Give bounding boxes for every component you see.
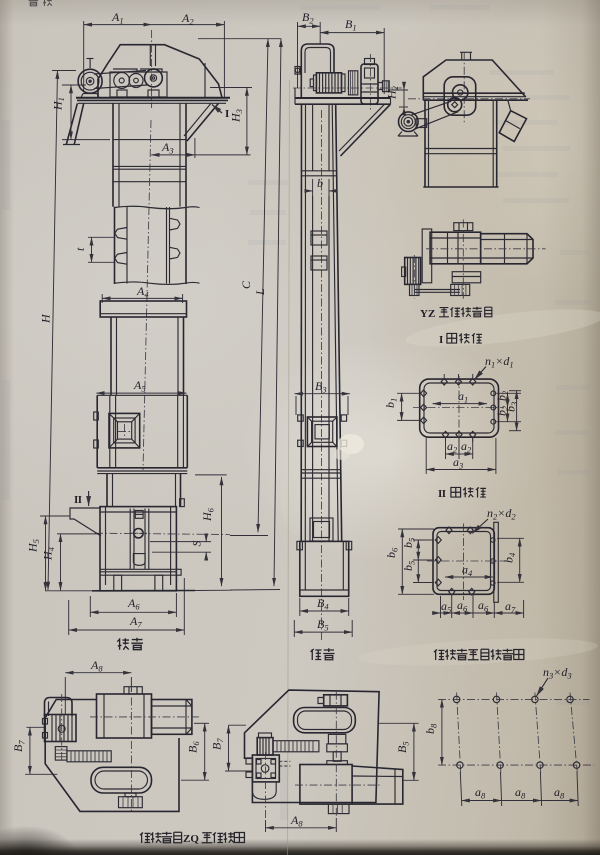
svg-text:a8: a8 bbox=[475, 785, 486, 801]
svg-text:b6: b6 bbox=[384, 547, 400, 558]
svg-text:A3: A3 bbox=[161, 140, 174, 156]
svg-text:B6: B6 bbox=[186, 741, 202, 753]
svg-text:a7: a7 bbox=[505, 599, 516, 615]
svg-text:b8: b8 bbox=[423, 723, 439, 734]
svg-text:a8: a8 bbox=[515, 785, 526, 801]
svg-text:b: b bbox=[317, 176, 323, 190]
svg-text:a4: a4 bbox=[462, 563, 473, 579]
svg-text:a2: a2 bbox=[447, 439, 458, 455]
svg-text:b5: b5 bbox=[401, 561, 417, 571]
svg-text:A1: A1 bbox=[111, 10, 124, 26]
svg-text:a2: a2 bbox=[461, 439, 472, 455]
svg-text:II: II bbox=[438, 488, 446, 500]
svg-text:B1: B1 bbox=[345, 17, 357, 33]
svg-text:B2: B2 bbox=[302, 10, 314, 26]
svg-text:ZQ: ZQ bbox=[183, 833, 199, 845]
svg-text:A8: A8 bbox=[290, 813, 303, 829]
svg-text:b3: b3 bbox=[504, 402, 520, 412]
svg-text:a5: a5 bbox=[441, 599, 451, 615]
svg-text:n2×d2: n2×d2 bbox=[487, 506, 516, 522]
svg-text:a1: a1 bbox=[458, 389, 468, 405]
svg-text:b1: b1 bbox=[383, 398, 399, 408]
svg-text:A7: A7 bbox=[129, 614, 142, 630]
svg-text:a6: a6 bbox=[478, 598, 489, 614]
svg-text:A5: A5 bbox=[133, 378, 146, 394]
svg-text:b4: b4 bbox=[502, 552, 518, 563]
svg-text:H1: H1 bbox=[51, 97, 67, 111]
svg-text:b2: b2 bbox=[495, 390, 511, 401]
svg-text:A2: A2 bbox=[181, 11, 194, 27]
svg-text:H5: H5 bbox=[26, 539, 42, 553]
svg-text:b5: b5 bbox=[401, 538, 417, 548]
svg-text:B3: B3 bbox=[315, 379, 327, 395]
svg-text:A8: A8 bbox=[90, 658, 103, 674]
svg-text:L: L bbox=[253, 288, 267, 296]
svg-text:H6: H6 bbox=[200, 507, 216, 522]
svg-text:S: S bbox=[190, 541, 204, 547]
svg-text:n1×d1: n1×d1 bbox=[485, 354, 514, 370]
svg-text:A6: A6 bbox=[127, 596, 140, 612]
svg-text:YZ: YZ bbox=[420, 308, 435, 320]
svg-text:H: H bbox=[39, 313, 53, 324]
svg-text:t: t bbox=[73, 247, 87, 251]
svg-text:C: C bbox=[239, 280, 253, 289]
svg-text:B7: B7 bbox=[210, 738, 226, 750]
svg-text:H3: H3 bbox=[229, 109, 245, 123]
svg-text:a8: a8 bbox=[554, 785, 565, 801]
svg-text:B5: B5 bbox=[395, 741, 411, 753]
svg-text:I: I bbox=[439, 334, 443, 346]
svg-text:II: II bbox=[74, 494, 82, 506]
svg-text:B5: B5 bbox=[317, 617, 329, 633]
svg-text:a3: a3 bbox=[453, 455, 463, 471]
svg-text:B4: B4 bbox=[317, 596, 329, 612]
svg-text:B7: B7 bbox=[11, 740, 27, 752]
svg-text:a6: a6 bbox=[457, 598, 468, 614]
